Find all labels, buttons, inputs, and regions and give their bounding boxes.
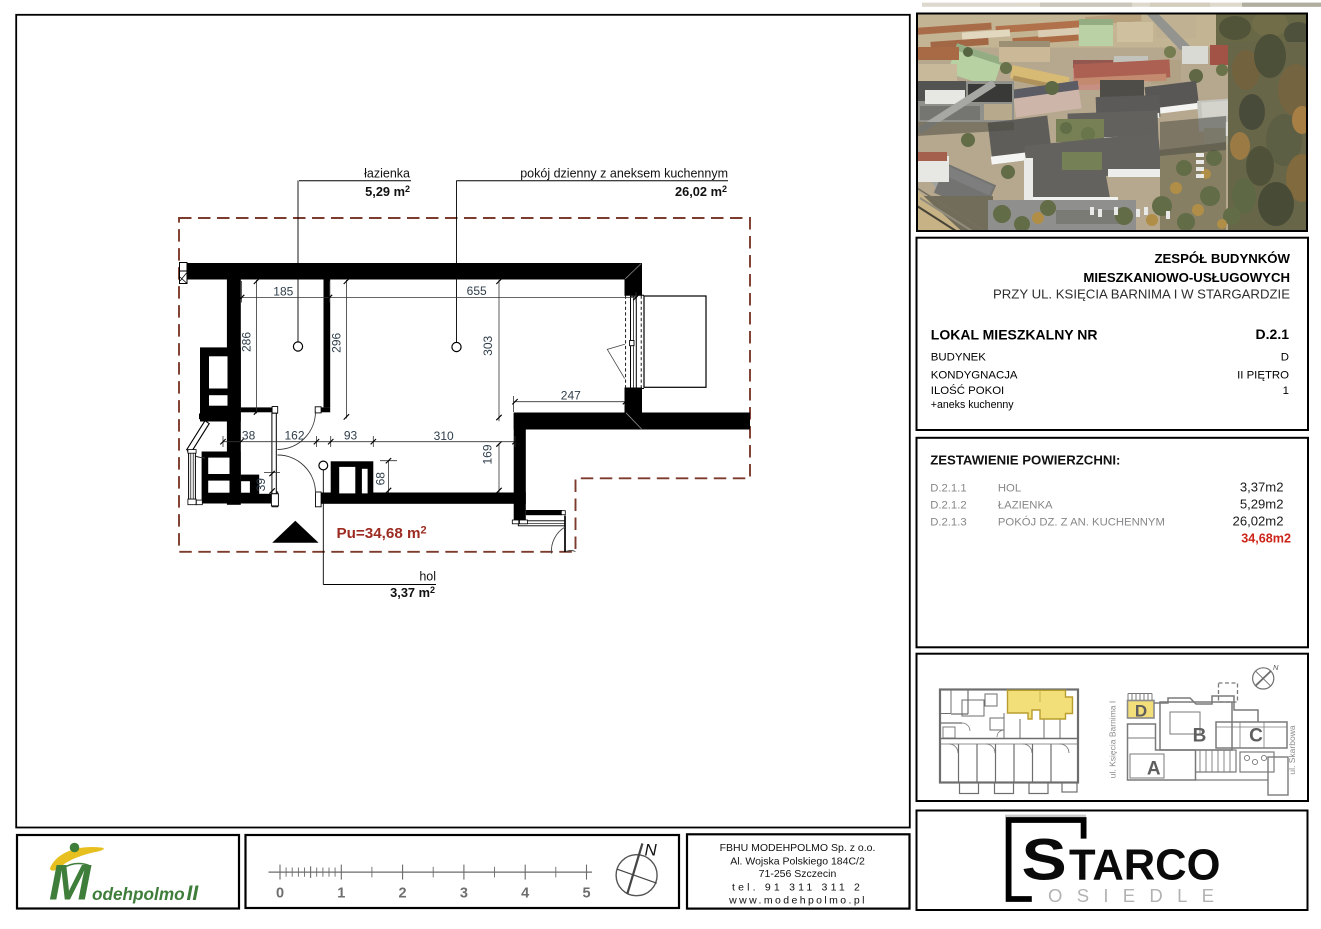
svg-text:26,02m2: 26,02m2 [1233, 514, 1284, 529]
svg-text:tel. 91 311 311 2: tel. 91 311 311 2 [732, 882, 863, 894]
svg-text:S: S [1022, 828, 1067, 892]
svg-text:D.2.1.2: D.2.1.2 [930, 500, 966, 512]
svg-text:N: N [645, 841, 658, 860]
svg-text:5,29 m2: 5,29 m2 [365, 184, 410, 199]
svg-text:310: 310 [434, 429, 454, 443]
svg-text:1: 1 [337, 886, 345, 902]
svg-text:POKÓJ DZ. Z AN. KUCHENNYM: POKÓJ DZ. Z AN. KUCHENNYM [998, 516, 1165, 529]
svg-text:ZESPÓŁ BUDYNKÓW: ZESPÓŁ BUDYNKÓW [1154, 251, 1290, 266]
svg-text:hol: hol [419, 570, 436, 584]
svg-text:3,37m2: 3,37m2 [1240, 480, 1284, 495]
svg-text:71-256 Szczecin: 71-256 Szczecin [759, 868, 837, 880]
svg-text:3,37 m2: 3,37 m2 [390, 585, 435, 600]
svg-text:TARCO: TARCO [1069, 842, 1220, 890]
svg-text:Pu=34,68 m2: Pu=34,68 m2 [337, 525, 427, 543]
svg-text:ZESTAWIENIE POWIERZCHNI:: ZESTAWIENIE POWIERZCHNI: [930, 453, 1120, 468]
svg-text:D.2.1.3: D.2.1.3 [930, 517, 966, 529]
svg-text:39: 39 [254, 478, 268, 492]
svg-text:4: 4 [521, 886, 529, 902]
svg-text:34,68m2: 34,68m2 [1241, 531, 1291, 545]
svg-text:N: N [1273, 663, 1279, 672]
svg-text:A: A [1147, 758, 1161, 779]
svg-text:D.2.1: D.2.1 [1256, 326, 1290, 342]
svg-text:68: 68 [373, 472, 387, 486]
svg-text:ILOŚĆ POKOI: ILOŚĆ POKOI [931, 384, 1004, 397]
svg-text:162: 162 [284, 429, 304, 443]
svg-text:BUDYNEK: BUDYNEK [931, 351, 986, 363]
svg-text:www.modehpolmo.pl: www.modehpolmo.pl [728, 895, 867, 907]
svg-text:II PIĘTRO: II PIĘTRO [1237, 369, 1289, 381]
svg-text:5: 5 [582, 886, 590, 902]
svg-text:PRZY UL. KSIĘCIA BARNIMA I W S: PRZY UL. KSIĘCIA BARNIMA I W STARGARDZIE [993, 286, 1290, 301]
svg-text:LOKAL MIESZKALNY NR: LOKAL MIESZKALNY NR [931, 327, 1098, 343]
svg-text:655: 655 [467, 284, 487, 298]
svg-text:OSIEDLE: OSIEDLE [1048, 885, 1228, 906]
svg-text:D.2.1.1: D.2.1.1 [930, 483, 966, 495]
svg-text:C: C [1249, 725, 1263, 746]
svg-text:FBHU MODEHPOLMO Sp. z o.o.: FBHU MODEHPOLMO Sp. z o.o. [720, 842, 876, 854]
svg-text:odehpolmo: odehpolmo [92, 884, 185, 904]
svg-text:łazienka: łazienka [364, 167, 410, 181]
svg-text:D: D [1281, 351, 1289, 363]
svg-text:M: M [49, 855, 92, 911]
svg-text:0: 0 [276, 886, 284, 902]
svg-text:5,29m2: 5,29m2 [1240, 497, 1284, 512]
svg-text:KONDYGNACJA: KONDYGNACJA [931, 369, 1018, 381]
svg-text:pokój dzienny z aneksem kuchen: pokój dzienny z aneksem kuchennym [520, 167, 728, 181]
svg-text:38: 38 [242, 429, 256, 443]
svg-text:ul. Skarbowa: ul. Skarbowa [1287, 725, 1297, 774]
svg-text:Al. Wojska Polskiego 184C/2: Al. Wojska Polskiego 184C/2 [730, 856, 865, 868]
svg-text:169: 169 [480, 444, 494, 464]
svg-text:HOL: HOL [998, 483, 1021, 495]
svg-text:D: D [1135, 702, 1147, 721]
svg-text:185: 185 [273, 284, 293, 298]
svg-text:II: II [187, 882, 200, 905]
svg-text:1: 1 [1283, 385, 1289, 397]
svg-text:286: 286 [240, 332, 254, 352]
svg-text:2: 2 [399, 886, 407, 902]
svg-text:+aneks kuchenny: +aneks kuchenny [931, 399, 1014, 411]
svg-text:303: 303 [481, 335, 495, 355]
svg-text:MIESZKANIOWO-USŁUGOWYCH: MIESZKANIOWO-USŁUGOWYCH [1083, 270, 1290, 285]
svg-text:ŁAZIENKA: ŁAZIENKA [998, 500, 1053, 512]
svg-text:296: 296 [329, 332, 343, 352]
svg-text:3: 3 [460, 886, 468, 902]
svg-text:93: 93 [344, 429, 358, 443]
svg-text:B: B [1193, 725, 1207, 746]
svg-text:26,02 m2: 26,02 m2 [675, 184, 727, 199]
svg-text:247: 247 [561, 388, 581, 402]
svg-text:ul. Księcia Barnima I: ul. Księcia Barnima I [1108, 701, 1118, 778]
